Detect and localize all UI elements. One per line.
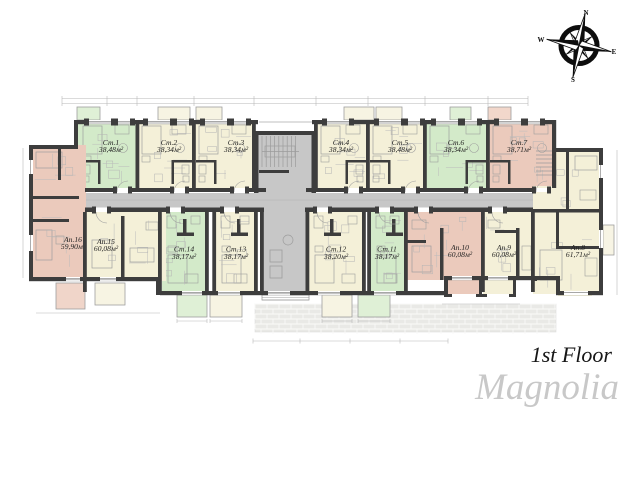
svg-text:38,20м²: 38,20м² (323, 252, 349, 261)
svg-text:59,90м²: 59,90м² (61, 242, 86, 251)
svg-text:N: N (583, 9, 588, 17)
svg-text:60,08м²: 60,08м² (492, 250, 517, 259)
svg-text:60,08м²: 60,08м² (448, 250, 473, 259)
svg-text:38,17м²: 38,17м² (374, 252, 400, 261)
svg-text:38,17м²: 38,17м² (171, 252, 197, 261)
svg-text:38,48м²: 38,48м² (98, 145, 124, 154)
svg-text:1st Floor: 1st Floor (531, 342, 613, 367)
svg-text:38,48м²: 38,48м² (387, 145, 413, 154)
svg-text:38,34м²: 38,34м² (328, 145, 354, 154)
svg-text:Magnolia: Magnolia (474, 367, 619, 408)
svg-text:S: S (571, 76, 575, 84)
svg-text:38,71м²: 38,71м² (506, 145, 532, 154)
svg-text:38,34м²: 38,34м² (443, 145, 469, 154)
svg-text:W: W (538, 36, 545, 44)
svg-text:60,08м²: 60,08м² (94, 244, 119, 253)
svg-text:61,71м²: 61,71м² (566, 250, 591, 259)
svg-text:38,17м²: 38,17м² (223, 252, 249, 261)
svg-text:38,34м²: 38,34м² (156, 145, 182, 154)
svg-text:38,34м²: 38,34м² (223, 145, 249, 154)
svg-text:E: E (612, 48, 617, 56)
